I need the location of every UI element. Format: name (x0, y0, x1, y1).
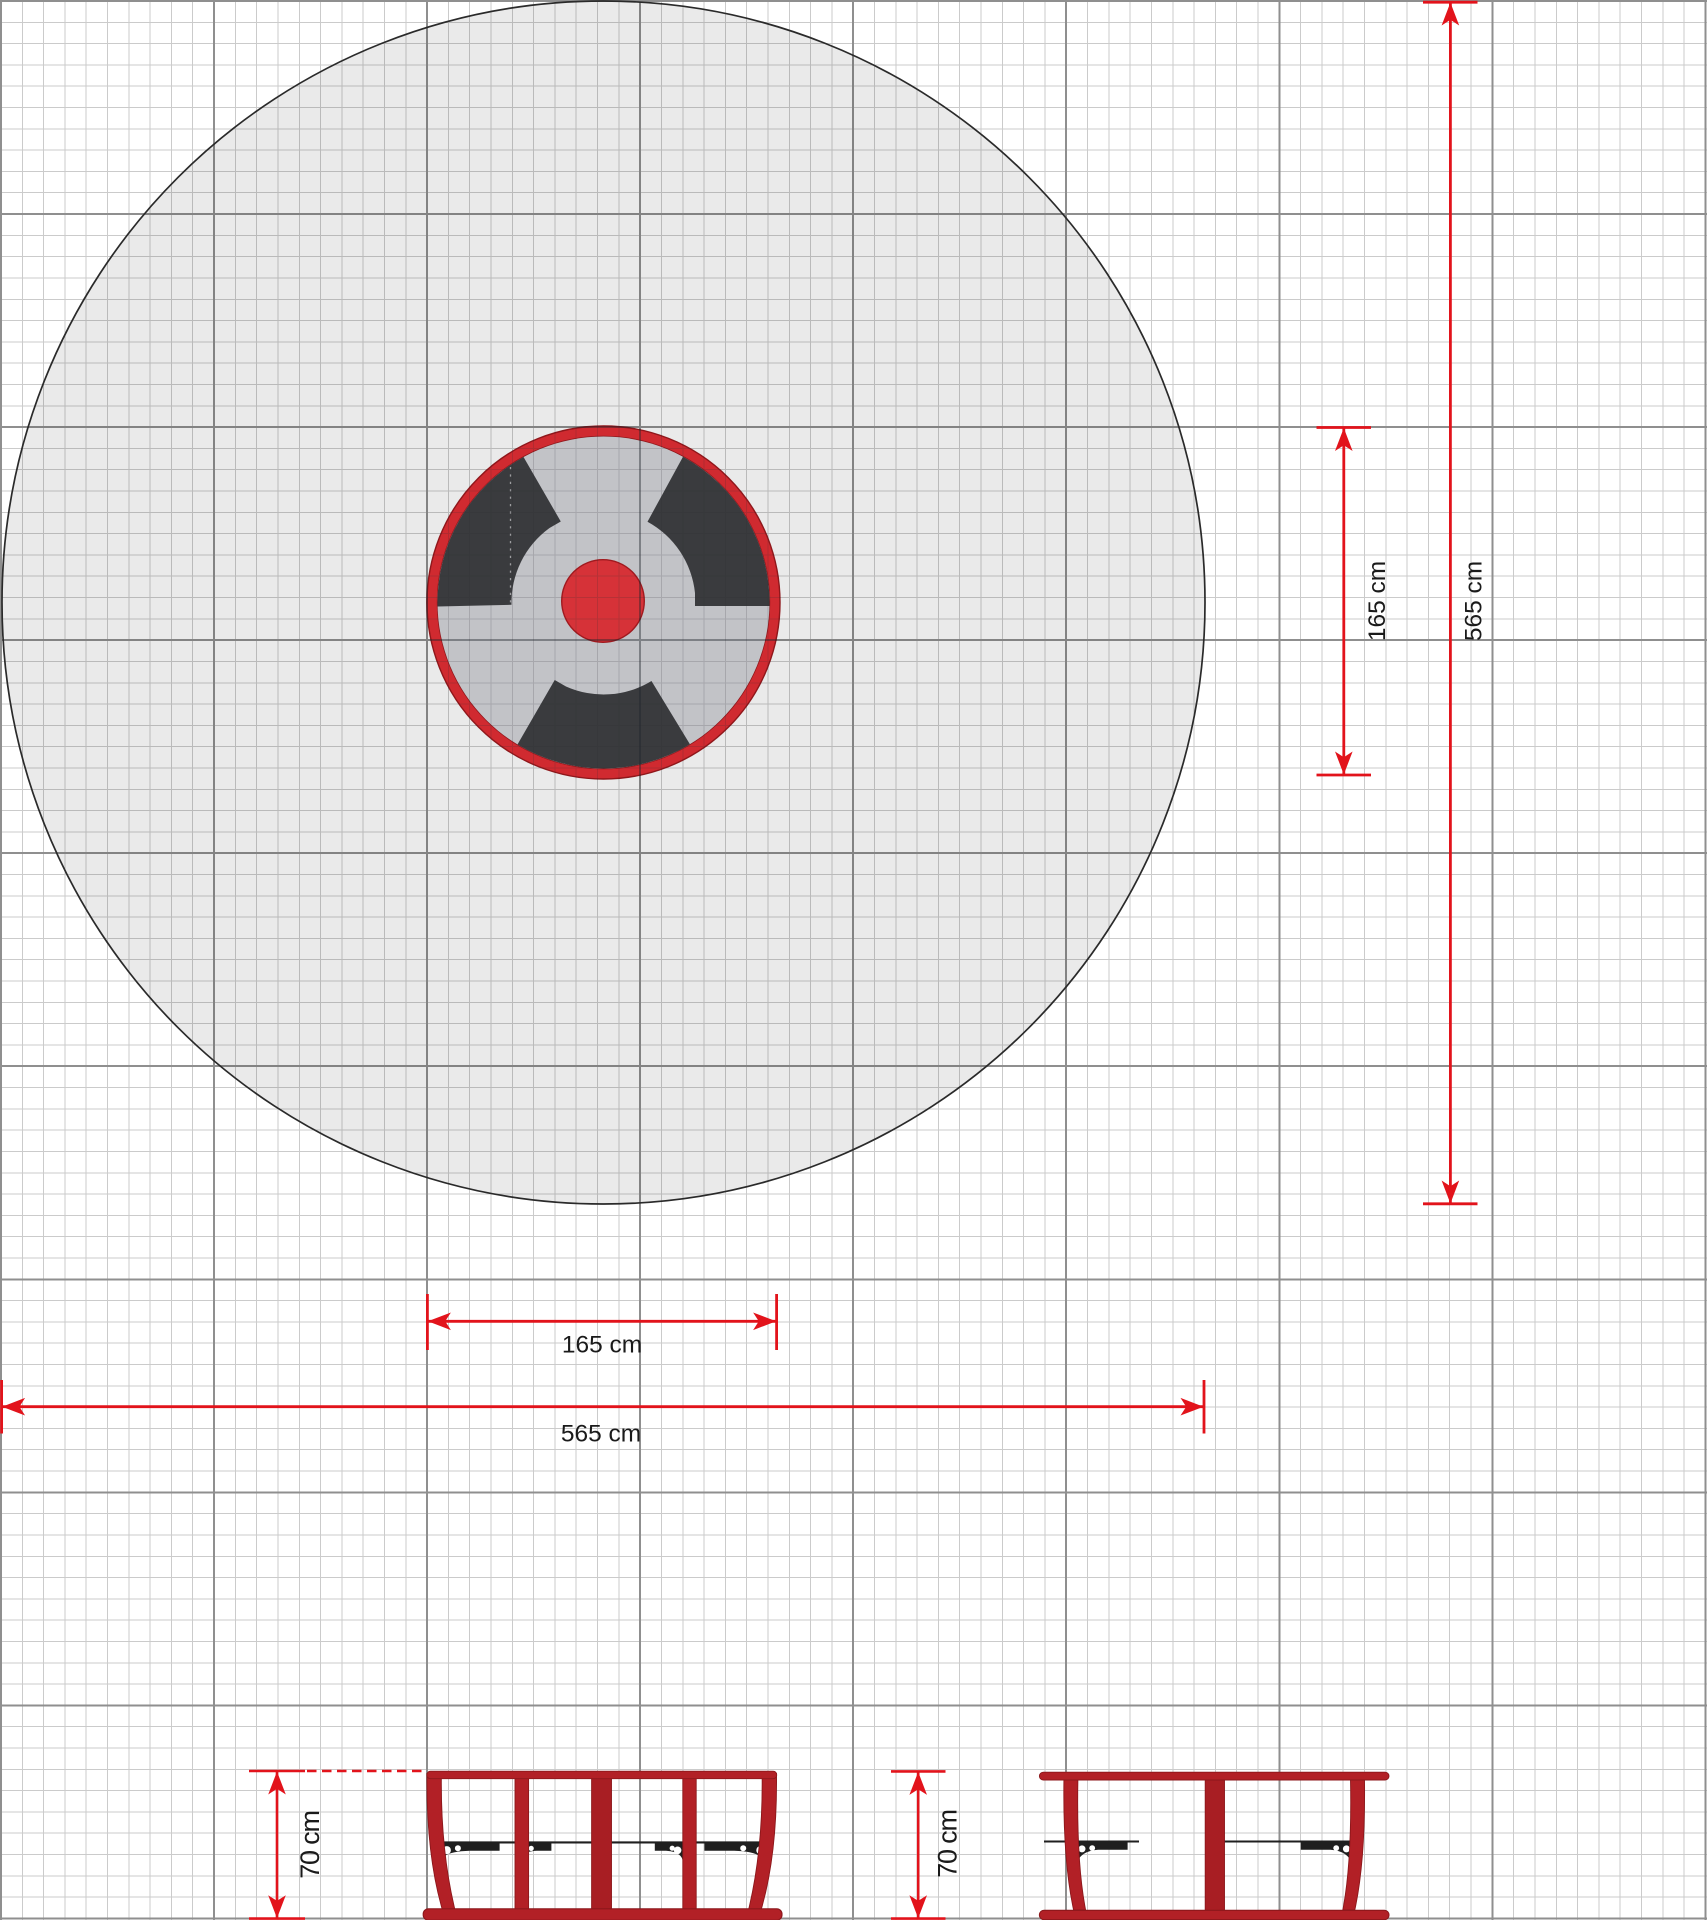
svg-text:70 cm: 70 cm (295, 1811, 325, 1879)
svg-text:565 cm: 565 cm (1461, 561, 1488, 641)
svg-text:165 cm: 165 cm (1364, 561, 1391, 641)
svg-text:70 cm: 70 cm (933, 1810, 963, 1878)
svg-text:565 cm: 565 cm (561, 1421, 641, 1448)
svg-text:165 cm: 165 cm (562, 1332, 642, 1359)
